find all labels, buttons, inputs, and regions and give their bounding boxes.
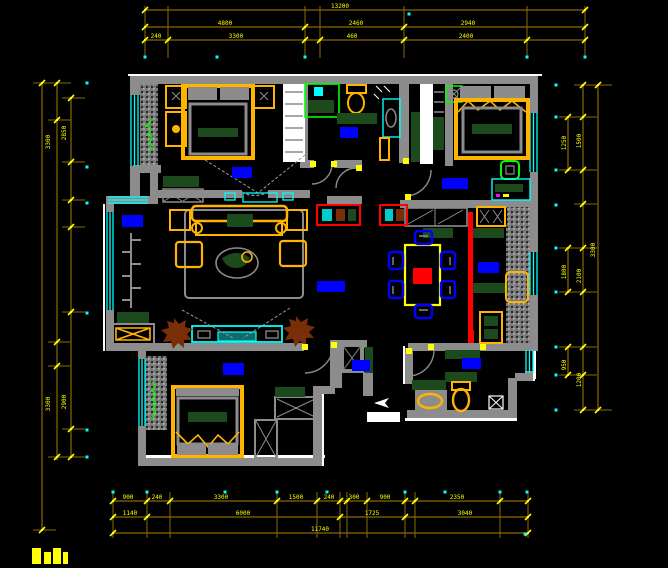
bathroom-label [340,127,358,138]
door-hinge [480,344,486,350]
osnap-dot [555,204,558,207]
osnap-dot [304,56,307,59]
floor-drain [489,396,503,409]
washbasin [415,390,447,412]
dim-label: 1200 [576,372,583,387]
door-hinge [405,194,411,200]
osnap-dot [526,56,529,59]
dim-label: 11740 [311,526,329,533]
door-hinge [403,158,409,164]
entry-hall-label [352,360,370,371]
door-hinge [302,344,308,350]
osnap-dot [86,202,89,205]
column-red [468,330,474,343]
osnap-dot [86,456,89,459]
osnap-dot [326,491,329,494]
dim-label: 2350 [450,494,465,501]
annotation-mark [63,552,68,564]
osnap-dot [404,491,407,494]
osnap-dot [524,533,527,536]
osnap-dot [216,56,219,59]
door-hinge [331,342,337,348]
dim-label: 900 [380,494,391,501]
dim-label: 3300 [45,134,52,149]
dim-label: 1500 [576,133,583,148]
bedroom-master-label [232,167,252,178]
annotation-mark [44,552,51,564]
dim-label: 900 [123,494,134,501]
bedroom-third-label [223,363,244,375]
counter [337,113,377,124]
dim-label: 2900 [61,394,68,409]
bench [163,176,199,187]
dim-label: 240 [151,33,162,40]
floorplan-canvas[interactable]: 1320048002460294024033004602400900240330… [0,0,668,568]
kitchen-partition-red [468,212,473,343]
counter [473,283,508,293]
osnap-dot [555,84,558,87]
counter [473,228,504,238]
dim-label: 2940 [461,20,476,27]
dim-label: 300 [349,494,360,501]
plant-box [117,312,149,324]
entry-threshold [367,412,400,422]
shelf [445,372,477,382]
osnap-dot [86,429,89,432]
osnap-dot [86,312,89,315]
osnap-dot [555,409,558,412]
bedroom-second-label [442,178,468,189]
kitchen-label [478,262,499,273]
wardrobe-hangers [283,84,305,162]
sofa-cushion [227,214,253,227]
annotation-mark [32,548,41,564]
dim-label: 13200 [331,3,349,10]
osnap-dot [86,82,89,85]
osnap-dot [555,169,558,172]
balcony-label [122,215,143,227]
dim-label: 1800 [561,264,568,279]
dim-label: 2100 [576,268,583,283]
shelf [412,380,446,390]
guest-bathroom-label [462,358,481,369]
dim-label: 460 [347,33,358,40]
door-hinge [331,161,337,167]
osnap-dot [555,291,558,294]
osnap-dot [146,491,149,494]
osnap-dot [526,491,529,494]
dim-label: 1250 [561,135,568,150]
dim-label: 2460 [349,20,364,27]
dim-label: 3300 [229,33,244,40]
osnap-dot [144,56,147,59]
osnap-dot [584,56,587,59]
dim-label: 240 [152,494,163,501]
shower-head-icon [314,87,323,96]
dim-label: 4800 [218,20,233,27]
living-dining-label [317,281,345,292]
osnap-dot [444,491,447,494]
dim-label: 1500 [289,494,304,501]
dim-label: 240 [324,494,335,501]
cad-viewport[interactable]: 1320048002460294024033004602400900240330… [0,0,668,568]
door-hinge [428,344,434,350]
dim-label: 950 [561,359,568,370]
dim-label: 6000 [236,510,251,517]
dim-label: 1725 [365,510,380,517]
osnap-dot [112,491,115,494]
door-hinge [356,165,362,171]
dim-label: 3300 [45,396,52,411]
dim-label: 1140 [123,510,138,517]
annotation-mark [53,548,61,564]
shelf [445,350,480,359]
osnap-dot [555,374,558,377]
dim-label: 3300 [590,242,597,257]
door-hinge [406,348,412,354]
osnap-dot [86,166,89,169]
dim-label: 3040 [458,510,473,517]
osnap-dot [224,491,227,494]
osnap-dot [555,116,558,119]
osnap-dot [408,13,411,16]
dim-label: 2400 [459,33,474,40]
dim-label: 2850 [61,125,68,140]
osnap-dot [555,346,558,349]
dim-label: 3300 [214,494,229,501]
door-hinge [310,161,316,167]
osnap-dot [555,247,558,250]
osnap-dot [499,491,502,494]
osnap-dot [276,491,279,494]
